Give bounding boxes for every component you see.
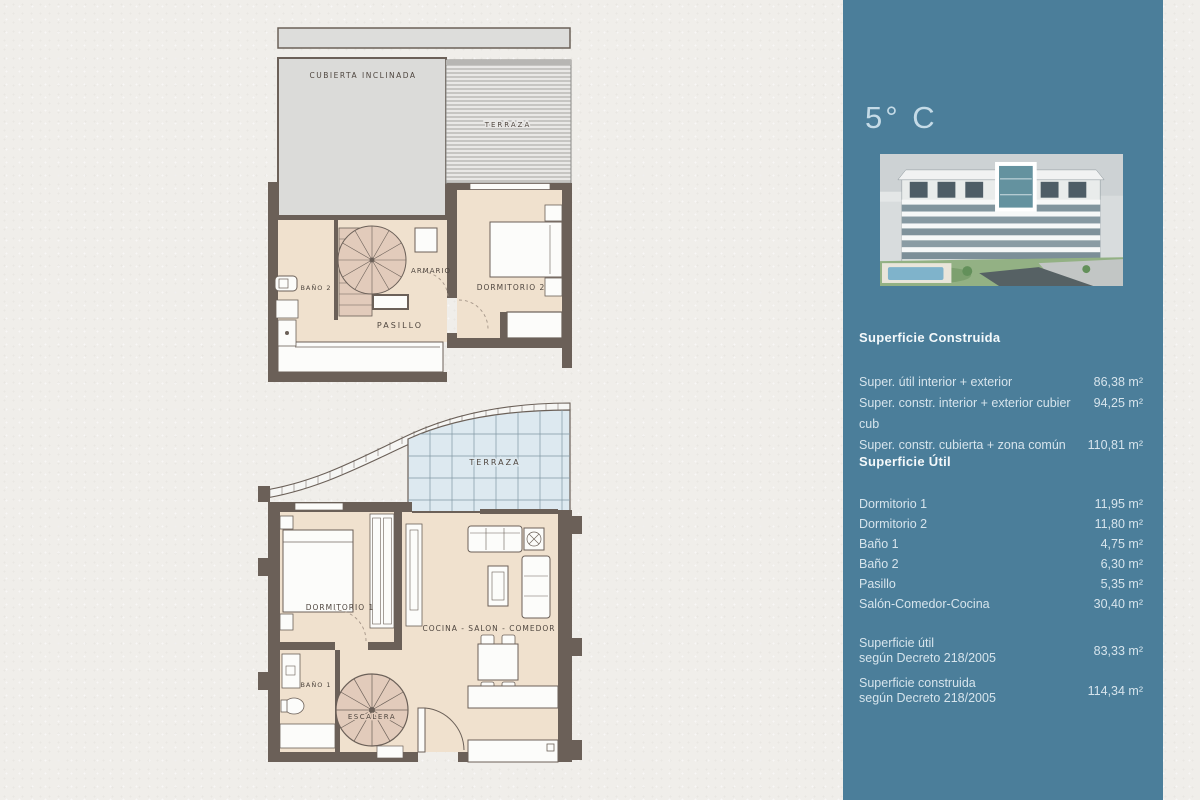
area-value: 5,35 m²	[1093, 574, 1143, 594]
area-value: 30,40 m²	[1086, 594, 1143, 614]
upper-balcony-left	[278, 342, 443, 372]
area-value: 94,25 m²	[1086, 393, 1143, 435]
area-row: Super. constr. cubierta + zona común 110…	[859, 435, 1143, 456]
unit-name: 5° C	[865, 100, 938, 136]
cubierta-inclinada-area: CUBIERTA INCLINADA	[278, 58, 446, 217]
rear-balcony-slab	[468, 740, 558, 762]
roof-edge-bar	[278, 28, 570, 48]
area-row: Baño 2 6,30 m²	[859, 554, 1143, 574]
kitchen-counter	[468, 686, 558, 708]
terraza-glass-roof: TERRAZA	[405, 400, 570, 512]
armario-label: ARMARIO	[411, 267, 451, 275]
area-label: Baño 1	[859, 534, 899, 554]
area-label: Super. constr. cubierta + zona común	[859, 435, 1066, 456]
util-rows: Dormitorio 1 11,95 m² Dormitorio 2 11,80…	[859, 494, 1143, 614]
decreto-line1: Superficie construida	[859, 676, 996, 691]
info-sidebar: 5° C	[843, 0, 1163, 800]
area-value: 83,33 m²	[1094, 644, 1143, 658]
salon-tall-unit	[406, 524, 422, 626]
dormitorio2-window	[470, 184, 550, 190]
area-label: Pasillo	[859, 574, 896, 594]
area-label: Super. constr. interior + exterior cubie…	[859, 393, 1086, 435]
coffee-table	[488, 566, 508, 606]
area-row: Super. útil interior + exterior 86,38 m²	[859, 372, 1143, 393]
dormitorio2-balcony	[507, 312, 562, 338]
lower-floor-plan: TERRAZA	[250, 390, 590, 770]
decreto-line1: Superficie útil	[859, 636, 996, 651]
dormitorio2-label: DORMITORIO 2	[477, 283, 546, 292]
upper-terraza-label: TERRAZA	[484, 121, 532, 129]
building-render-image	[880, 154, 1123, 286]
area-value: 4,75 m²	[1093, 534, 1143, 554]
escalera-label: ESCALERA	[348, 713, 396, 721]
dormitorio1-window	[295, 503, 343, 510]
upper-terraza-area: TERRAZA	[446, 60, 571, 183]
area-value: 114,34 m²	[1088, 684, 1143, 698]
decreto-line2: según Decreto 218/2005	[859, 691, 996, 706]
decreto-construida-row: Superficie construida según Decreto 218/…	[859, 676, 1143, 706]
decreto-label: Superficie útil según Decreto 218/2005	[859, 636, 996, 666]
plant-icon	[524, 528, 544, 550]
area-value: 86,38 m²	[1086, 372, 1143, 393]
area-row: Dormitorio 2 11,80 m²	[859, 514, 1143, 534]
upper-floor-plan: CUBIERTA INCLINADA TERRAZA	[255, 20, 585, 385]
area-value: 110,81 m²	[1080, 435, 1143, 456]
grounds	[880, 257, 1123, 286]
area-row: Super. constr. interior + exterior cubie…	[859, 393, 1143, 435]
area-value: 6,30 m²	[1093, 554, 1143, 574]
area-value: 11,95 m²	[1087, 494, 1143, 514]
unit-highlight	[997, 164, 1035, 210]
cubierta-label: CUBIERTA INCLINADA	[310, 71, 417, 80]
cocina-salon-label: COCINA - SALON - COMEDOR	[423, 624, 556, 633]
area-row: Baño 1 4,75 m²	[859, 534, 1143, 554]
area-label: Super. útil interior + exterior	[859, 372, 1012, 393]
area-row: Pasillo 5,35 m²	[859, 574, 1143, 594]
area-value: 11,80 m²	[1087, 514, 1143, 534]
lower-terraza-label: TERRAZA	[468, 458, 520, 467]
area-label: Baño 2	[859, 554, 899, 574]
construida-heading: Superficie Construida	[859, 330, 1143, 345]
decreto-util-row: Superficie útil según Decreto 218/2005 8…	[859, 636, 1143, 666]
area-row: Salón-Comedor-Cocina 30,40 m²	[859, 594, 1143, 614]
pasillo-label: PASILLO	[377, 321, 423, 330]
spiral-staircase-upper	[338, 226, 408, 316]
dormitorio1-label: DORMITORIO 1	[306, 603, 375, 612]
decreto-label: Superficie construida según Decreto 218/…	[859, 676, 996, 706]
sofa	[468, 526, 522, 552]
armario-box	[415, 228, 437, 252]
bano2-fixtures	[275, 276, 298, 346]
area-label: Salón-Comedor-Cocina	[859, 594, 990, 614]
util-heading: Superficie Útil	[859, 454, 1143, 469]
brochure-page: CUBIERTA INCLINADA TERRAZA	[0, 0, 1200, 800]
decreto-line2: según Decreto 218/2005	[859, 651, 996, 666]
bano2-label: BAÑO 2	[300, 283, 331, 292]
area-row: Dormitorio 1 11,95 m²	[859, 494, 1143, 514]
area-label: Dormitorio 1	[859, 494, 927, 514]
construida-rows: Super. útil interior + exterior 86,38 m²…	[859, 372, 1143, 456]
area-label: Dormitorio 2	[859, 514, 927, 534]
bano1-label: BAÑO 1	[300, 680, 331, 689]
armchair	[522, 556, 550, 618]
